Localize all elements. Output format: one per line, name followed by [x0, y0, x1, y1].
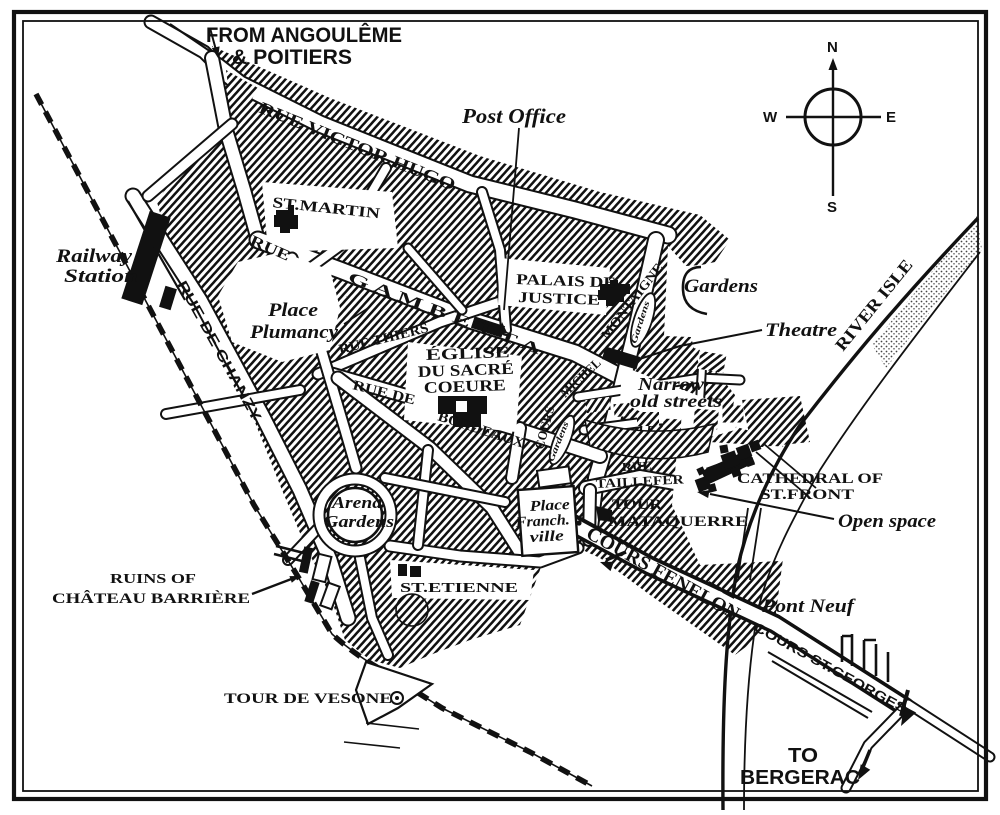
svg-text:Pont Neuf: Pont Neuf — [761, 596, 856, 617]
svg-text:TO: TO — [788, 745, 818, 767]
svg-text:Theatre: Theatre — [765, 320, 838, 341]
svg-text:Place: Place — [267, 300, 319, 321]
svg-text:COEURE: COEURE — [424, 377, 507, 397]
svg-text:BERGERAC: BERGERAC — [740, 767, 860, 789]
svg-text:TOUR: TOUR — [612, 497, 662, 513]
svg-text:Plumancy: Plumancy — [249, 322, 339, 343]
svg-text:Arena: Arena — [331, 493, 383, 512]
svg-text:RUE: RUE — [621, 458, 652, 474]
svg-text:Railway: Railway — [55, 246, 133, 267]
svg-text:MATAQUERRE: MATAQUERRE — [608, 514, 748, 530]
svg-text:RUINS OF: RUINS OF — [110, 572, 196, 587]
svg-text:Station: Station — [64, 266, 138, 287]
svg-text:Post Office: Post Office — [461, 104, 566, 128]
svg-text:& POITIERS: & POITIERS — [232, 46, 352, 69]
svg-text:S: S — [827, 199, 837, 216]
svg-text:TOUR DE VESONE: TOUR DE VESONE — [224, 691, 392, 707]
svg-text:old streets: old streets — [630, 391, 722, 411]
svg-text:ST.FRONT: ST.FRONT — [760, 487, 854, 503]
svg-text:W: W — [763, 109, 778, 126]
svg-text:N: N — [827, 39, 838, 56]
svg-text:FROM ANGOULÊME: FROM ANGOULÊME — [206, 23, 402, 47]
svg-text:Gardens: Gardens — [684, 276, 758, 297]
svg-text:JUSTICE: JUSTICE — [518, 290, 601, 309]
svg-text:ville: ville — [529, 528, 564, 546]
svg-text:E: E — [886, 109, 896, 126]
svg-text:Open space: Open space — [838, 511, 937, 532]
svg-text:CHÂTEAU BARRIÈRE: CHÂTEAU BARRIÈRE — [52, 590, 250, 607]
svg-text:Gardens: Gardens — [324, 512, 394, 531]
svg-text:ST.ETIENNE: ST.ETIENNE — [400, 581, 518, 596]
svg-text:CATHEDRAL OF: CATHEDRAL OF — [737, 471, 883, 487]
